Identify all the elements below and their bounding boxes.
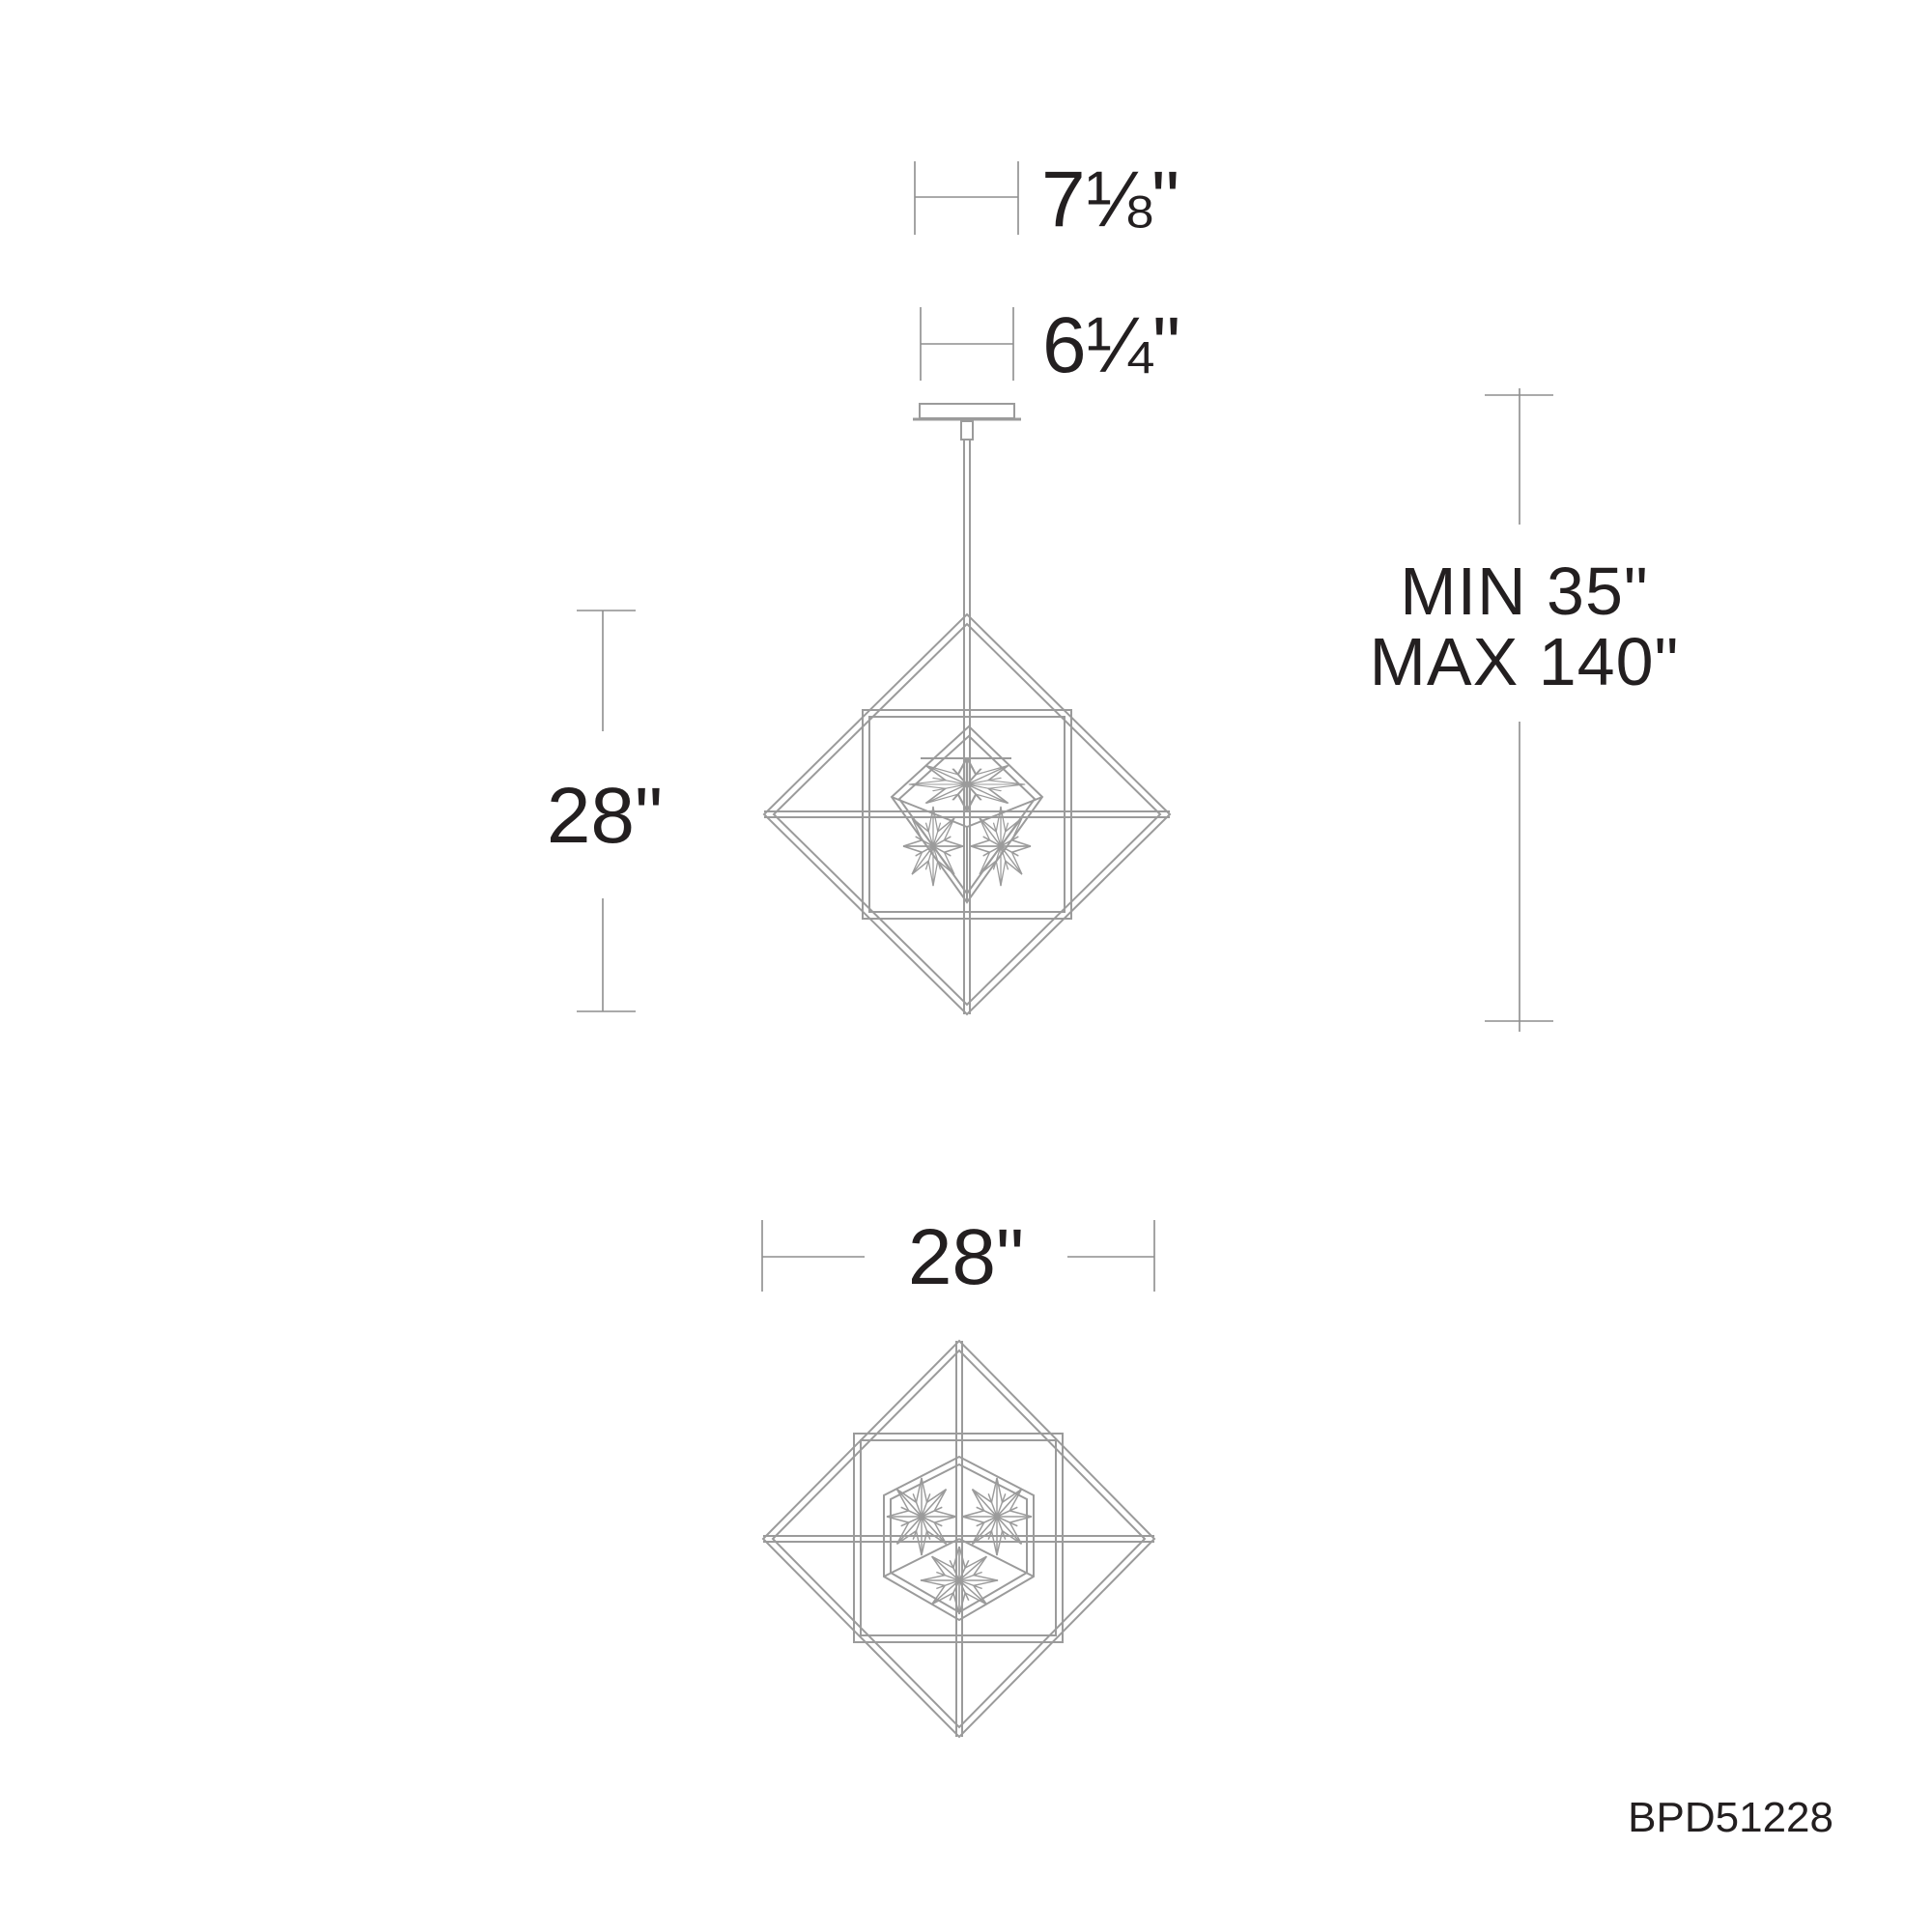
fixture-height-label: 28": [508, 773, 701, 860]
crystal-cube: [884, 1457, 1034, 1620]
horizontal-cross-bar: [764, 811, 1170, 817]
cube-upper-right-facets: [962, 1478, 1032, 1555]
suspension-max-label: MAX 140": [1331, 627, 1718, 697]
center-vertical-rod: [964, 615, 970, 1014]
canopy-overall-width-dimension: [915, 161, 1018, 235]
suspension-length-label: MIN 35" MAX 140": [1331, 556, 1718, 697]
line-art: [0, 0, 1932, 1932]
canopy-width-label: 6¼": [1042, 302, 1180, 389]
fixture-width-label: 28": [869, 1214, 1063, 1301]
product-code: BPD51228: [1544, 1793, 1833, 1843]
plan-view: [763, 1341, 1154, 1737]
canopy-overall-width-label: 7⅛": [1041, 156, 1179, 243]
suspension-min-label: MIN 35": [1331, 556, 1718, 627]
cube-right-facets: [971, 807, 1031, 886]
outer-diamond-frame: [764, 614, 1170, 1014]
suspension-length-dimension: [1485, 388, 1553, 1032]
down-rod: [964, 440, 970, 615]
cube-left-facets: [903, 807, 963, 886]
cube-upper-left-facets: [887, 1478, 956, 1555]
crystal-cube: [892, 726, 1042, 902]
canopy-width-dimension: [921, 307, 1013, 381]
cube-top-facets: [909, 758, 1025, 811]
ceiling-canopy: [913, 404, 1021, 440]
spec-sheet: 7⅛" 6¼" 28" MIN 35" MAX 140" 28" BPD5122…: [0, 0, 1932, 1932]
cube-bottom-facets: [921, 1547, 998, 1614]
side-view: [764, 404, 1170, 1014]
